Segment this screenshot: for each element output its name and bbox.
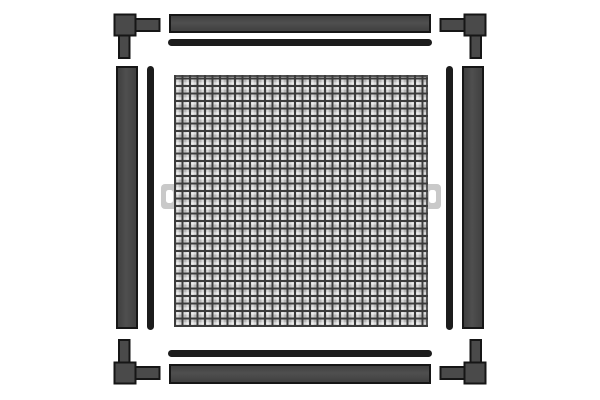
pull-tab-right-hole: [429, 190, 436, 203]
frame-bar-right: [462, 66, 484, 329]
spline-top: [168, 39, 432, 46]
corner-connector-top-left: [113, 13, 161, 59]
frame-bar-bottom: [169, 364, 431, 384]
mesh-panel: [174, 75, 428, 327]
exploded-diagram-insect-screen-kit: [0, 0, 600, 400]
pull-tab-left-hole: [166, 190, 173, 203]
spline-right: [446, 66, 453, 330]
frame-bar-left: [116, 66, 138, 329]
frame-bar-top: [169, 14, 431, 33]
corner-connector-bottom-right: [439, 339, 487, 385]
spline-left: [147, 66, 154, 330]
spline-bottom: [168, 350, 432, 357]
corner-connector-bottom-left: [113, 339, 161, 385]
corner-connector-top-right: [439, 13, 487, 59]
